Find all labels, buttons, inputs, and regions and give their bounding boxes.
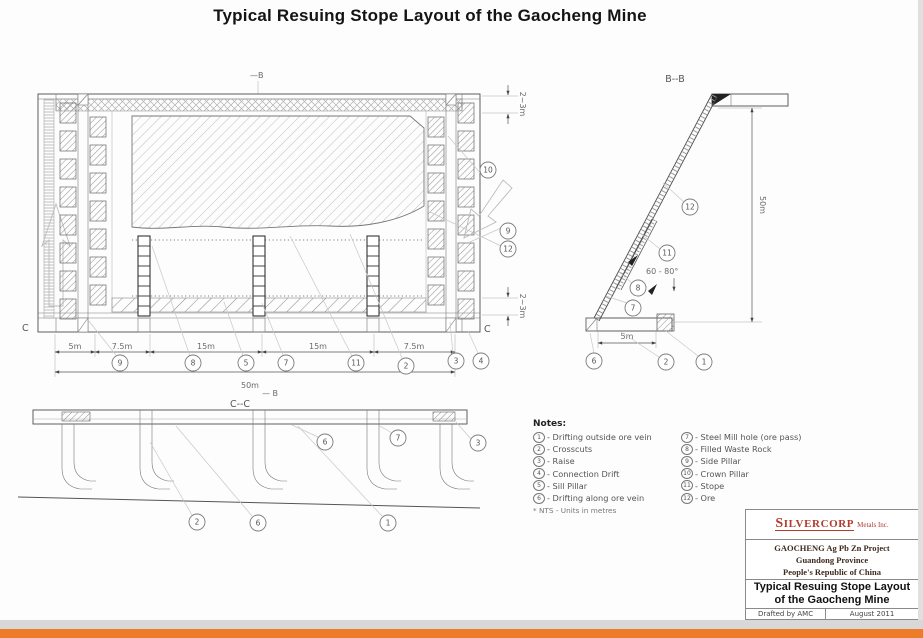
note-number: 1 [533, 432, 545, 443]
svg-text:7: 7 [284, 359, 289, 368]
crown-pillar-band [56, 99, 462, 111]
notes-heading: Notes: [533, 419, 923, 429]
chute [140, 424, 170, 489]
callout-6b: 6 [250, 515, 266, 531]
dim-angle: 60 - 80° [646, 267, 678, 276]
callout-1: 1 [380, 515, 396, 531]
note-item-11: 11- Stope [681, 480, 851, 492]
notes-column-left: 1- Drifting outside ore vein 2- Crosscut… [533, 431, 681, 504]
pillar [253, 236, 265, 316]
callout-8: 8 [630, 280, 646, 296]
note-item-2: 2- Crosscuts [533, 443, 681, 455]
note-number: 2 [533, 444, 545, 455]
drawing-title: Typical Resuing Stope Layout of the Gaoc… [746, 580, 918, 609]
bottom-orange-bar [0, 629, 923, 638]
svg-text:10: 10 [483, 166, 493, 175]
project-province: Guandong Province [746, 554, 918, 566]
svg-text:9: 9 [118, 359, 123, 368]
note-item-6: 6- Drifting along ore vein [533, 492, 681, 504]
svg-text:8: 8 [636, 284, 641, 293]
project-name: GAOCHENG Ag Pb Zn Project [746, 542, 918, 554]
section-marker-b-top: —B [250, 71, 264, 80]
plan-view: —B [22, 71, 527, 398]
note-number: 10 [681, 468, 693, 479]
dim-15m: 15m [309, 342, 327, 351]
callout-12: 12 [500, 241, 516, 257]
dim-7-5m: 7.5m [404, 342, 425, 351]
svg-text:6: 6 [592, 357, 597, 366]
callout-3: 3 [448, 353, 464, 369]
callout-2: 2 [189, 514, 205, 530]
svg-text:3: 3 [454, 357, 459, 366]
note-item-5: 5- Sill Pillar [533, 480, 681, 492]
note-number: 8 [681, 444, 693, 455]
callout-11: 11 [659, 245, 675, 261]
note-item-10: 10- Crown Pillar [681, 468, 851, 480]
drift-outside-vein-box [657, 314, 674, 331]
notes-legend: Notes: 1- Drifting outside ore vein 2- C… [533, 419, 923, 515]
note-item-4: 4- Connection Drift [533, 468, 681, 480]
note-number: 7 [681, 432, 693, 443]
callout-7: 7 [390, 430, 406, 446]
note-number: 5 [533, 480, 545, 491]
svg-text:2: 2 [195, 518, 200, 527]
section-letter-c-left: C [22, 323, 29, 334]
callout-2: 2 [398, 358, 414, 374]
note-number: 12 [681, 493, 693, 504]
svg-text:1: 1 [386, 519, 391, 528]
note-item-7: 7- Steel Mill hole (ore pass) [681, 431, 851, 443]
svg-text:8: 8 [191, 359, 196, 368]
dim-7-5m: 7.5m [112, 342, 133, 351]
svg-text:2: 2 [404, 362, 409, 371]
section-cc-view: C--C [18, 399, 486, 531]
note-item-9: 9- Side Pillar [681, 455, 851, 467]
chute [440, 424, 470, 489]
note-number: 6 [533, 493, 545, 504]
callout-4: 4 [473, 353, 489, 369]
note-number: 3 [533, 456, 545, 467]
note-item-3: 3- Raise [533, 455, 681, 467]
dim-50m: 50m [241, 381, 259, 390]
slope-arrow [648, 284, 657, 295]
chute [253, 424, 283, 489]
svg-text:11: 11 [351, 359, 361, 368]
svg-text:12: 12 [685, 203, 695, 212]
note-text: - Sill Pillar [547, 481, 587, 491]
svg-text:7: 7 [631, 304, 636, 313]
logo-suffix: Metals Inc. [857, 521, 889, 529]
ore-body-region [132, 116, 424, 228]
callout-10: 10 [480, 162, 496, 178]
silvercorp-logo: SILVERCORP Metals Inc. [746, 510, 918, 540]
note-text: - Steel Mill hole (ore pass) [695, 432, 802, 442]
note-text: - Stope [695, 481, 724, 491]
note-text: - Drifting outside ore vein [547, 432, 652, 442]
svg-text:6: 6 [323, 438, 328, 447]
logo-wordmark: SILVERCORP [775, 518, 854, 531]
drafted-by: Drafted by AMC [746, 609, 826, 619]
callout-6: 6 [317, 434, 333, 450]
callout-8: 8 [185, 355, 201, 371]
note-number: 9 [681, 456, 693, 467]
callout-1: 1 [696, 354, 712, 370]
note-number: 11 [681, 480, 693, 491]
dim-height-50m: 50m [758, 196, 767, 214]
project-info: GAOCHENG Ag Pb Zn Project Guandong Provi… [746, 540, 918, 580]
title-block-footer: Drafted by AMC August 2011 [746, 609, 918, 619]
callout-11: 11 [348, 355, 364, 371]
callout-6: 6 [586, 353, 602, 369]
note-item-12: 12- Ore [681, 492, 851, 504]
svg-text:12: 12 [503, 245, 513, 254]
notes-column-right: 7- Steel Mill hole (ore pass) 8- Filled … [681, 431, 851, 504]
callout-12: 12 [682, 199, 698, 215]
drawing-title-line1: Typical Resuing Stope Layout [746, 581, 918, 594]
note-text: - Raise [547, 456, 575, 466]
pillar [138, 236, 150, 316]
note-text: - Filled Waste Rock [695, 444, 772, 454]
dim-15m: 15m [197, 342, 215, 351]
callout-7: 7 [625, 300, 641, 316]
note-text: - Drifting along ore vein [547, 493, 644, 503]
callout-9-right: 9 [500, 223, 516, 239]
dim-crown-2-3m: 2~3m [518, 92, 527, 117]
note-text: - Connection Drift [547, 469, 619, 479]
note-number: 4 [533, 468, 545, 479]
svg-text:3: 3 [476, 439, 481, 448]
crown-marker [712, 94, 731, 106]
drawing-title-line2: of the Gaocheng Mine [746, 594, 918, 607]
project-country: People's Republic of China [746, 566, 918, 578]
svg-text:2: 2 [664, 358, 669, 367]
title-block: SILVERCORP Metals Inc. GAOCHENG Ag Pb Zn… [745, 509, 919, 620]
section-bb-title: B--B [665, 74, 685, 85]
svg-text:4: 4 [479, 357, 484, 366]
svg-text:5: 5 [244, 359, 249, 368]
callout-3: 3 [470, 435, 486, 451]
svg-text:9: 9 [506, 227, 511, 236]
end-detail [433, 412, 455, 421]
right-edge-strip [918, 0, 923, 620]
bottom-gray-strip [0, 620, 923, 629]
callout-5: 5 [238, 355, 254, 371]
section-letter-c-right: C [484, 324, 491, 335]
svg-text:1: 1 [702, 358, 707, 367]
dim-sill-2-3m: 2~3m [518, 294, 527, 319]
pillar [367, 236, 379, 316]
section-marker-b-bottom: — B [262, 389, 278, 398]
note-text: - Crosscuts [547, 444, 592, 454]
svg-text:6: 6 [256, 519, 261, 528]
note-text: - Ore [695, 493, 715, 503]
callout-7: 7 [278, 355, 294, 371]
note-text: - Crown Pillar [695, 469, 749, 479]
section-bb-view: B--B 60 - 80° 50m [586, 74, 788, 370]
callout-9: 9 [112, 355, 128, 371]
svg-text:7: 7 [396, 434, 401, 443]
section-cc-title: C--C [230, 399, 250, 410]
note-text: - Side Pillar [695, 456, 741, 466]
end-detail [62, 412, 90, 421]
note-item-1: 1- Drifting outside ore vein [533, 431, 681, 443]
chute [62, 424, 92, 489]
note-item-8: 8- Filled Waste Rock [681, 443, 851, 455]
dim-5m: 5m [69, 342, 82, 351]
drawing-sheet: Typical Resuing Stope Layout of the Gaoc… [0, 0, 923, 638]
drawing-date: August 2011 [826, 609, 918, 619]
callout-2: 2 [658, 354, 674, 370]
svg-text:11: 11 [662, 249, 672, 258]
